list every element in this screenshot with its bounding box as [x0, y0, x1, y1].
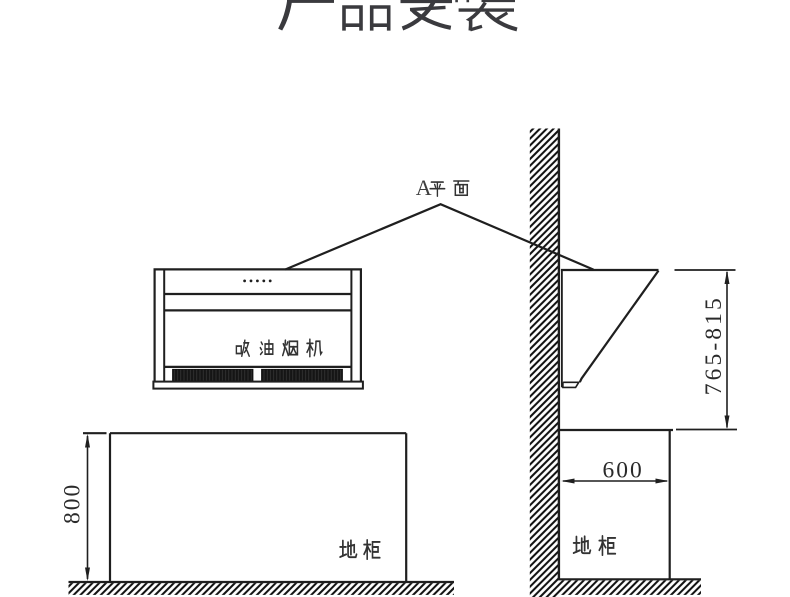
svg-text:A: A	[416, 175, 432, 200]
svg-text:600: 600	[603, 458, 644, 484]
svg-text:765-815: 765-815	[701, 295, 727, 395]
svg-text:800: 800	[60, 483, 86, 524]
